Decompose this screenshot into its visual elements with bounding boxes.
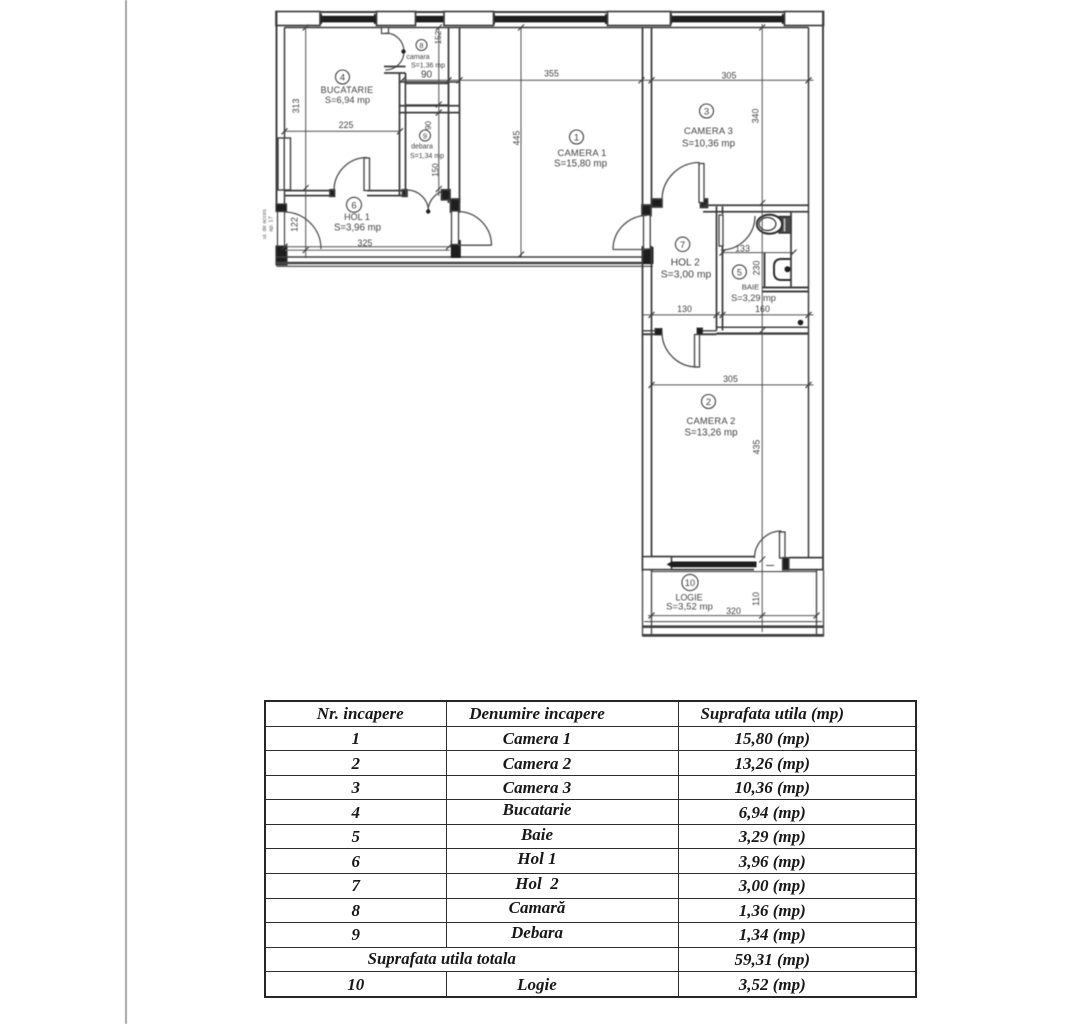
svg-text:3: 3: [704, 107, 709, 118]
svg-text:8: 8: [419, 41, 423, 50]
svg-text:2: 2: [706, 397, 711, 408]
svg-text:S=6,94 mp: S=6,94 mp: [325, 95, 370, 105]
svg-text:S=3,52 mp: S=3,52 mp: [666, 602, 713, 613]
svg-text:camara: camara: [406, 54, 429, 61]
svg-text:HOL 1: HOL 1: [344, 212, 370, 222]
svg-text:1: 1: [574, 133, 579, 144]
svg-text:S=13,26 mp: S=13,26 mp: [684, 427, 738, 438]
svg-text:S=3,29 mp: S=3,29 mp: [731, 293, 776, 303]
svg-text:S=1,36 mp: S=1,36 mp: [411, 62, 445, 69]
svg-text:340: 340: [751, 109, 761, 124]
svg-text:7: 7: [680, 239, 685, 250]
svg-text:CAMERA 3: CAMERA 3: [684, 125, 733, 136]
svg-text:4: 4: [340, 73, 345, 84]
svg-text:S=3,00 mp: S=3,00 mp: [661, 270, 712, 281]
svg-text:122: 122: [290, 217, 300, 232]
svg-text:305: 305: [723, 374, 738, 384]
svg-text:6: 6: [351, 200, 356, 211]
svg-text:313: 313: [291, 99, 301, 114]
svg-text:435: 435: [752, 440, 762, 455]
svg-text:355: 355: [544, 69, 559, 79]
svg-text:325: 325: [358, 238, 373, 248]
svg-text:BUCATARIE: BUCATARIE: [321, 85, 374, 95]
svg-text:10: 10: [685, 578, 695, 588]
svg-text:S=1,34 mp: S=1,34 mp: [410, 153, 444, 160]
svg-text:110: 110: [751, 592, 761, 606]
svg-text:CAMERA 1: CAMERA 1: [557, 147, 606, 158]
svg-text:90: 90: [421, 70, 433, 81]
svg-text:9: 9: [423, 132, 427, 141]
svg-text:230: 230: [752, 261, 762, 276]
svg-text:ui. de acces: ui. de acces: [262, 209, 268, 239]
svg-text:S=10,36 mp: S=10,36 mp: [682, 138, 736, 149]
svg-text:445: 445: [512, 131, 522, 146]
svg-text:90: 90: [424, 121, 433, 130]
svg-text:320: 320: [726, 606, 741, 616]
svg-text:debara: debara: [411, 143, 433, 150]
svg-text:133: 133: [735, 243, 750, 253]
svg-text:HOL 2: HOL 2: [671, 258, 700, 269]
svg-text:S=15,80 mp: S=15,80 mp: [554, 158, 608, 169]
svg-text:225: 225: [339, 120, 354, 130]
svg-text:150: 150: [431, 163, 440, 177]
svg-text:305: 305: [722, 70, 737, 80]
svg-text:152: 152: [434, 30, 443, 44]
svg-text:160: 160: [755, 304, 770, 314]
svg-text:CAMERA 2: CAMERA 2: [686, 415, 735, 426]
svg-text:BAIE: BAIE: [742, 282, 760, 291]
svg-text:S=3,96 mp: S=3,96 mp: [334, 223, 381, 234]
svg-text:ap. 17: ap. 17: [269, 216, 275, 232]
svg-text:5: 5: [737, 267, 742, 277]
svg-text:130: 130: [677, 304, 692, 314]
